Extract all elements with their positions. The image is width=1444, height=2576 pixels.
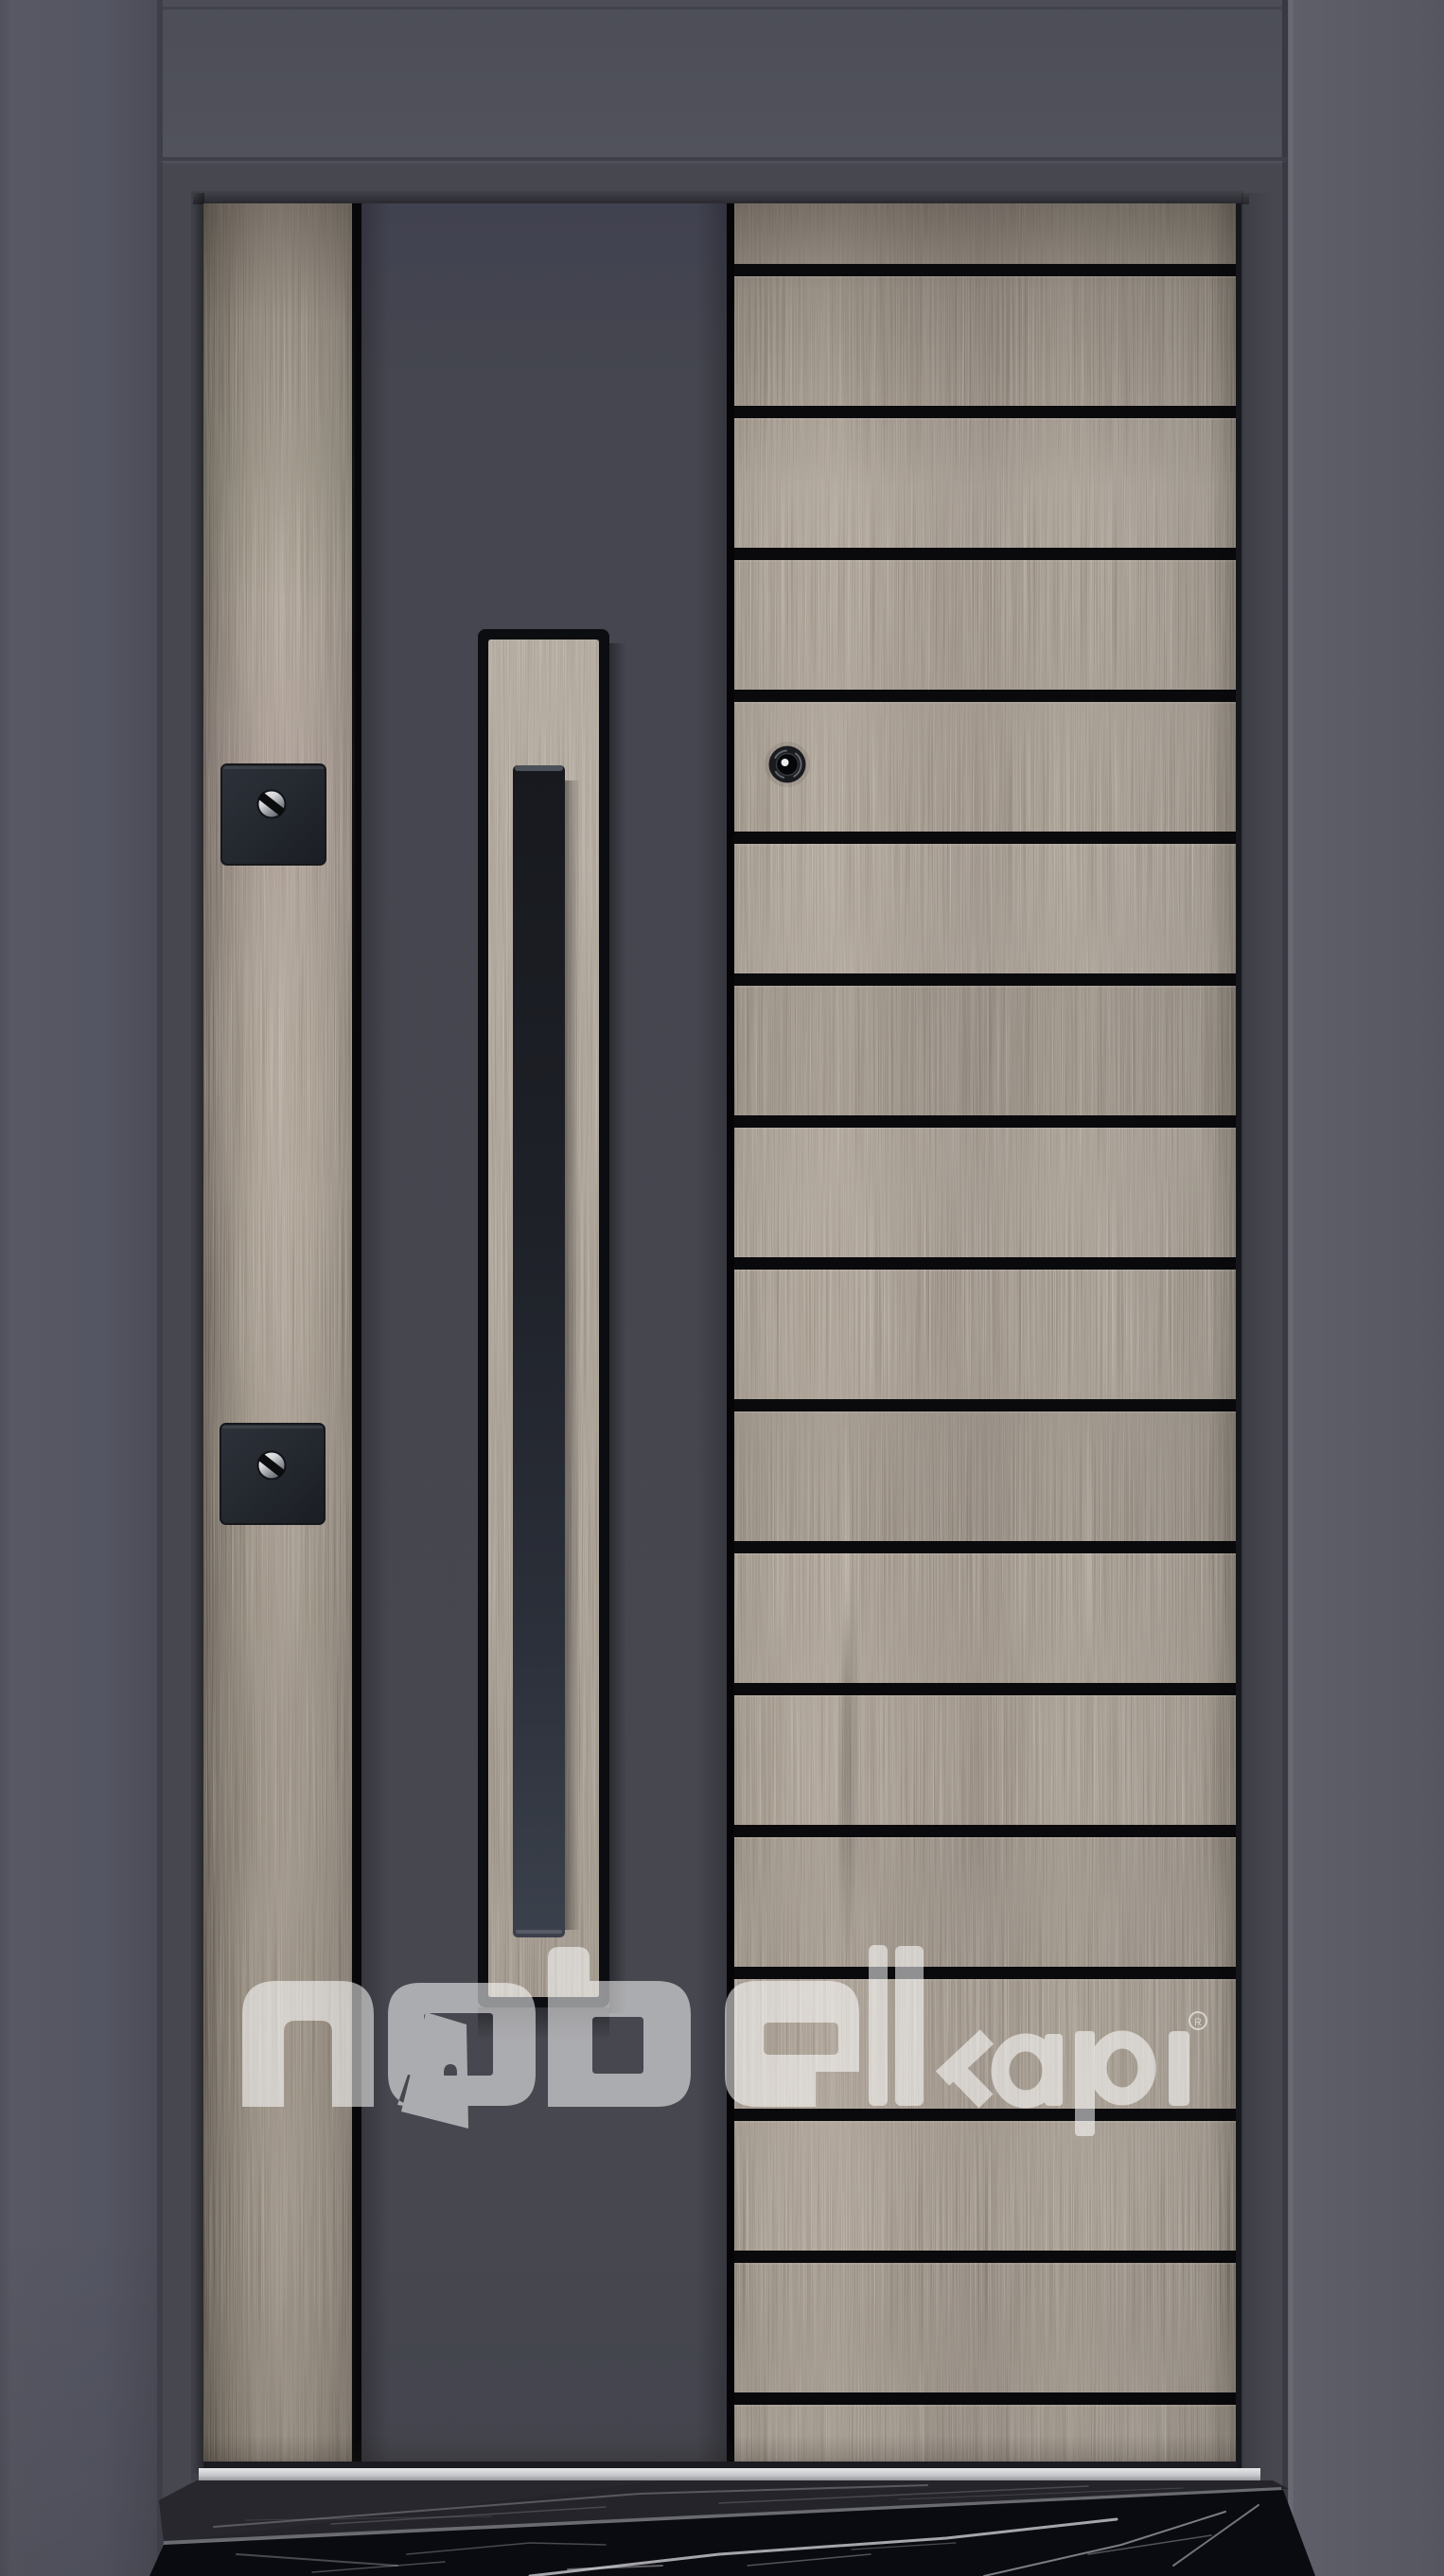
svg-text:R: R bbox=[1194, 2017, 1202, 2028]
